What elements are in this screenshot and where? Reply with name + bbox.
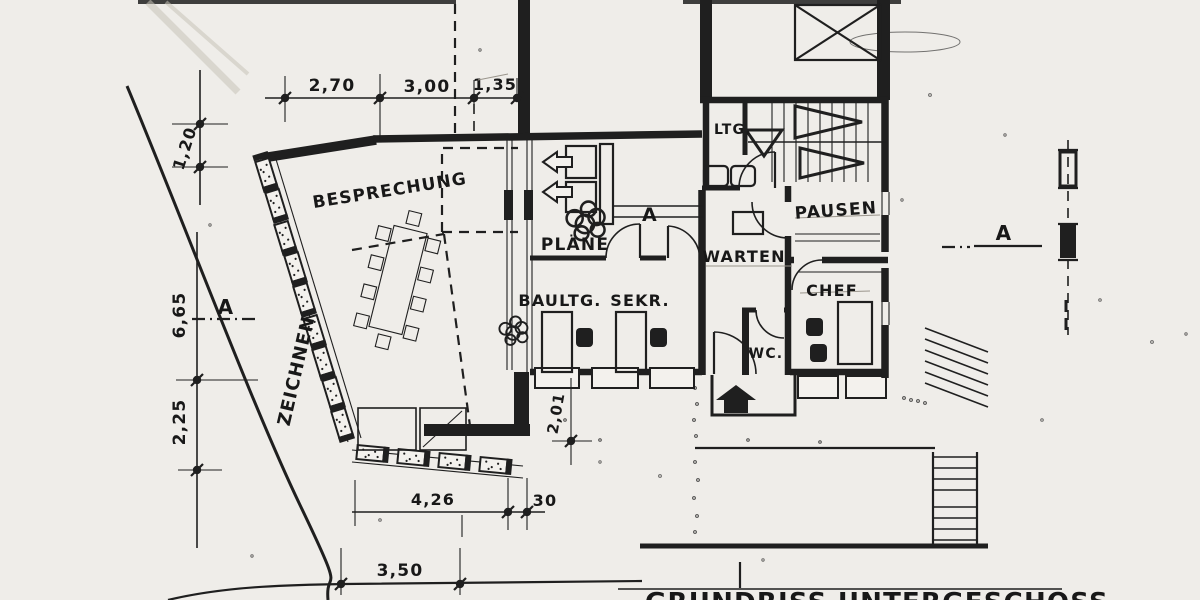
desk — [616, 312, 646, 372]
dim-top-2: 3,00 — [404, 77, 451, 97]
column-solid — [1060, 224, 1076, 258]
chair — [650, 328, 667, 347]
arrow-left-icon — [543, 182, 572, 202]
drawing-title: GRUNDRISS UNTERGESCHOSS — [645, 588, 1109, 600]
exterior-stairs-icon — [933, 452, 977, 546]
window-pier — [397, 448, 430, 467]
dim-left-lower: 2,25 — [170, 399, 190, 446]
small-room — [358, 408, 416, 450]
room-label-besprechung: BESPRECHUNG — [311, 169, 468, 213]
window-pier — [254, 158, 279, 193]
section-mark-a-middle: A — [642, 204, 658, 226]
arrow-left-icon — [543, 152, 572, 172]
window-pier — [798, 376, 838, 398]
stairs-icon — [746, 103, 886, 182]
dim-bottom-outer: 3,50 — [377, 561, 424, 581]
window-pier — [264, 189, 289, 224]
plant-icon — [499, 316, 527, 344]
desk — [838, 302, 872, 364]
window-pier — [321, 377, 346, 412]
window-pier — [273, 221, 298, 256]
construction-dashed-lines — [352, 4, 518, 426]
room-label-pausen: PAUSEN — [794, 198, 878, 224]
room-label-chef: CHEF — [806, 281, 858, 300]
room-label-sekr: SEKR. — [610, 291, 670, 310]
room-label-plaene: PLÄNE — [541, 233, 609, 255]
column — [524, 190, 533, 220]
stair-block: LTG. — [700, 100, 888, 190]
room-label-baultg: BAULTG. — [518, 291, 601, 310]
locker — [731, 166, 755, 186]
chair — [810, 344, 827, 362]
dim-left-upper: 1,20 — [169, 124, 201, 172]
left-wing: BESPRECHUNG ZEICHNEN — [252, 151, 530, 478]
property-line-bottom-curve — [168, 581, 642, 600]
room-label-warten: WARTEN — [702, 247, 785, 266]
section-mark-a-left: A — [218, 295, 235, 319]
room-label-wc: WC. — [749, 346, 784, 362]
exterior-ramp-icon — [925, 328, 988, 407]
dim-top-1: 2,70 — [309, 76, 356, 96]
window-pier — [283, 252, 308, 287]
desk — [542, 312, 572, 372]
column — [504, 190, 513, 220]
room-label-zeichnen: ZEICHNEN — [274, 314, 320, 428]
section-mark-a-right: A — [996, 221, 1013, 245]
chair — [806, 318, 823, 336]
floor-plan-drawing: BESPRECHUNG ZEICHNEN PLÄNE — [0, 0, 1200, 600]
window-pier — [479, 456, 512, 475]
window-pier — [438, 452, 471, 471]
dimensions: 2,70 3,00 1,35 1,20 6,65 2,25 4,26 30 2,… — [169, 70, 592, 595]
window-pier — [356, 444, 389, 463]
window-pier — [650, 368, 694, 388]
dim-left-middle: 6,65 — [170, 292, 190, 339]
dim-top-3: 1,35 — [473, 75, 517, 94]
wall-heavy-bar — [514, 372, 529, 434]
room-label-ltg: LTG. — [714, 122, 752, 138]
floor-plan-sheet: BESPRECHUNG ZEICHNEN PLÄNE — [0, 0, 1200, 600]
chair — [576, 328, 593, 347]
adjacent-structure-strip — [1058, 140, 1078, 335]
dim-bottom-inner-small: 30 — [533, 491, 558, 510]
window-pier — [311, 346, 336, 381]
entrance-arrow-icon — [716, 385, 756, 413]
dim-bottom-inner: 4,26 — [411, 490, 455, 509]
conference-table — [350, 204, 446, 355]
title-block: GRUNDRISS UNTERGESCHOSS — [618, 562, 1109, 600]
window-pier — [292, 283, 317, 318]
paper-specks — [209, 49, 1187, 561]
dim-entry: 2,01 — [544, 391, 569, 435]
window-pier — [330, 408, 355, 443]
window-pier — [846, 376, 886, 398]
